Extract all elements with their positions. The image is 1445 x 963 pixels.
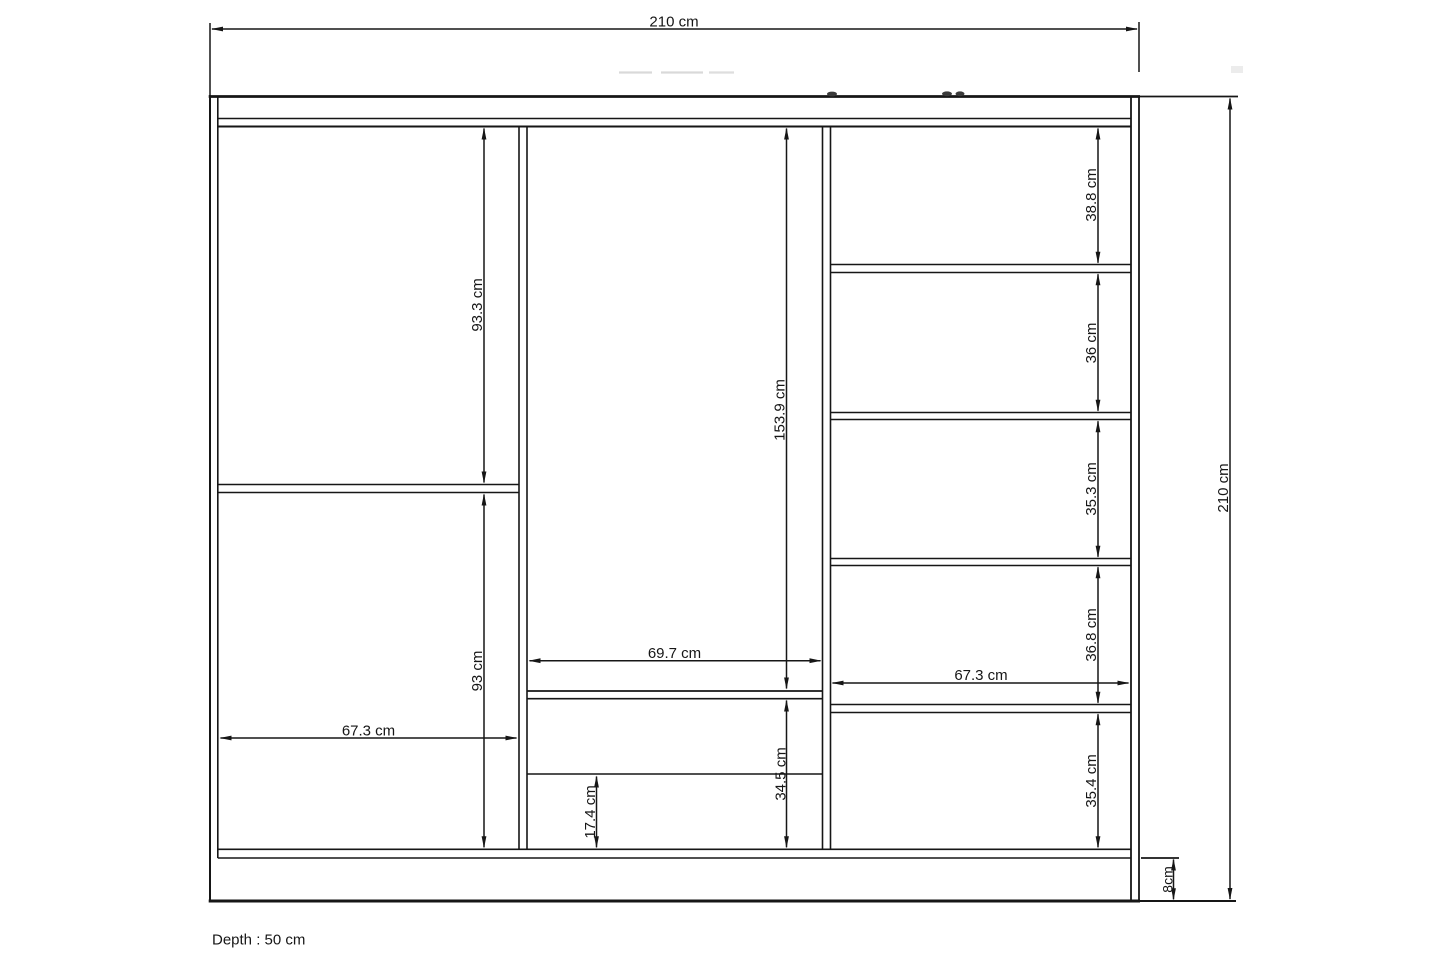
svg-text:93 cm: 93 cm [469,651,486,692]
svg-text:67.3 cm: 67.3 cm [342,722,395,739]
svg-text:69.7 cm: 69.7 cm [648,645,701,662]
svg-text:153.9 cm: 153.9 cm [772,379,789,441]
svg-text:Depth : 50 cm: Depth : 50 cm [212,932,305,949]
svg-text:17.4 cm: 17.4 cm [582,785,599,838]
svg-text:210 cm: 210 cm [1215,463,1232,512]
svg-text:36 cm: 36 cm [1083,323,1100,364]
svg-text:67.3 cm: 67.3 cm [954,667,1007,684]
svg-text:36.8 cm: 36.8 cm [1083,608,1100,661]
svg-text:34.5 cm: 34.5 cm [772,747,789,800]
svg-text:8cm: 8cm [1159,866,1175,892]
svg-text:35.3 cm: 35.3 cm [1083,462,1100,515]
svg-text:38.8 cm: 38.8 cm [1083,168,1100,221]
svg-text:93.3 cm: 93.3 cm [469,278,486,331]
svg-text:210 cm: 210 cm [649,14,698,31]
svg-text:35.4 cm: 35.4 cm [1083,754,1100,807]
